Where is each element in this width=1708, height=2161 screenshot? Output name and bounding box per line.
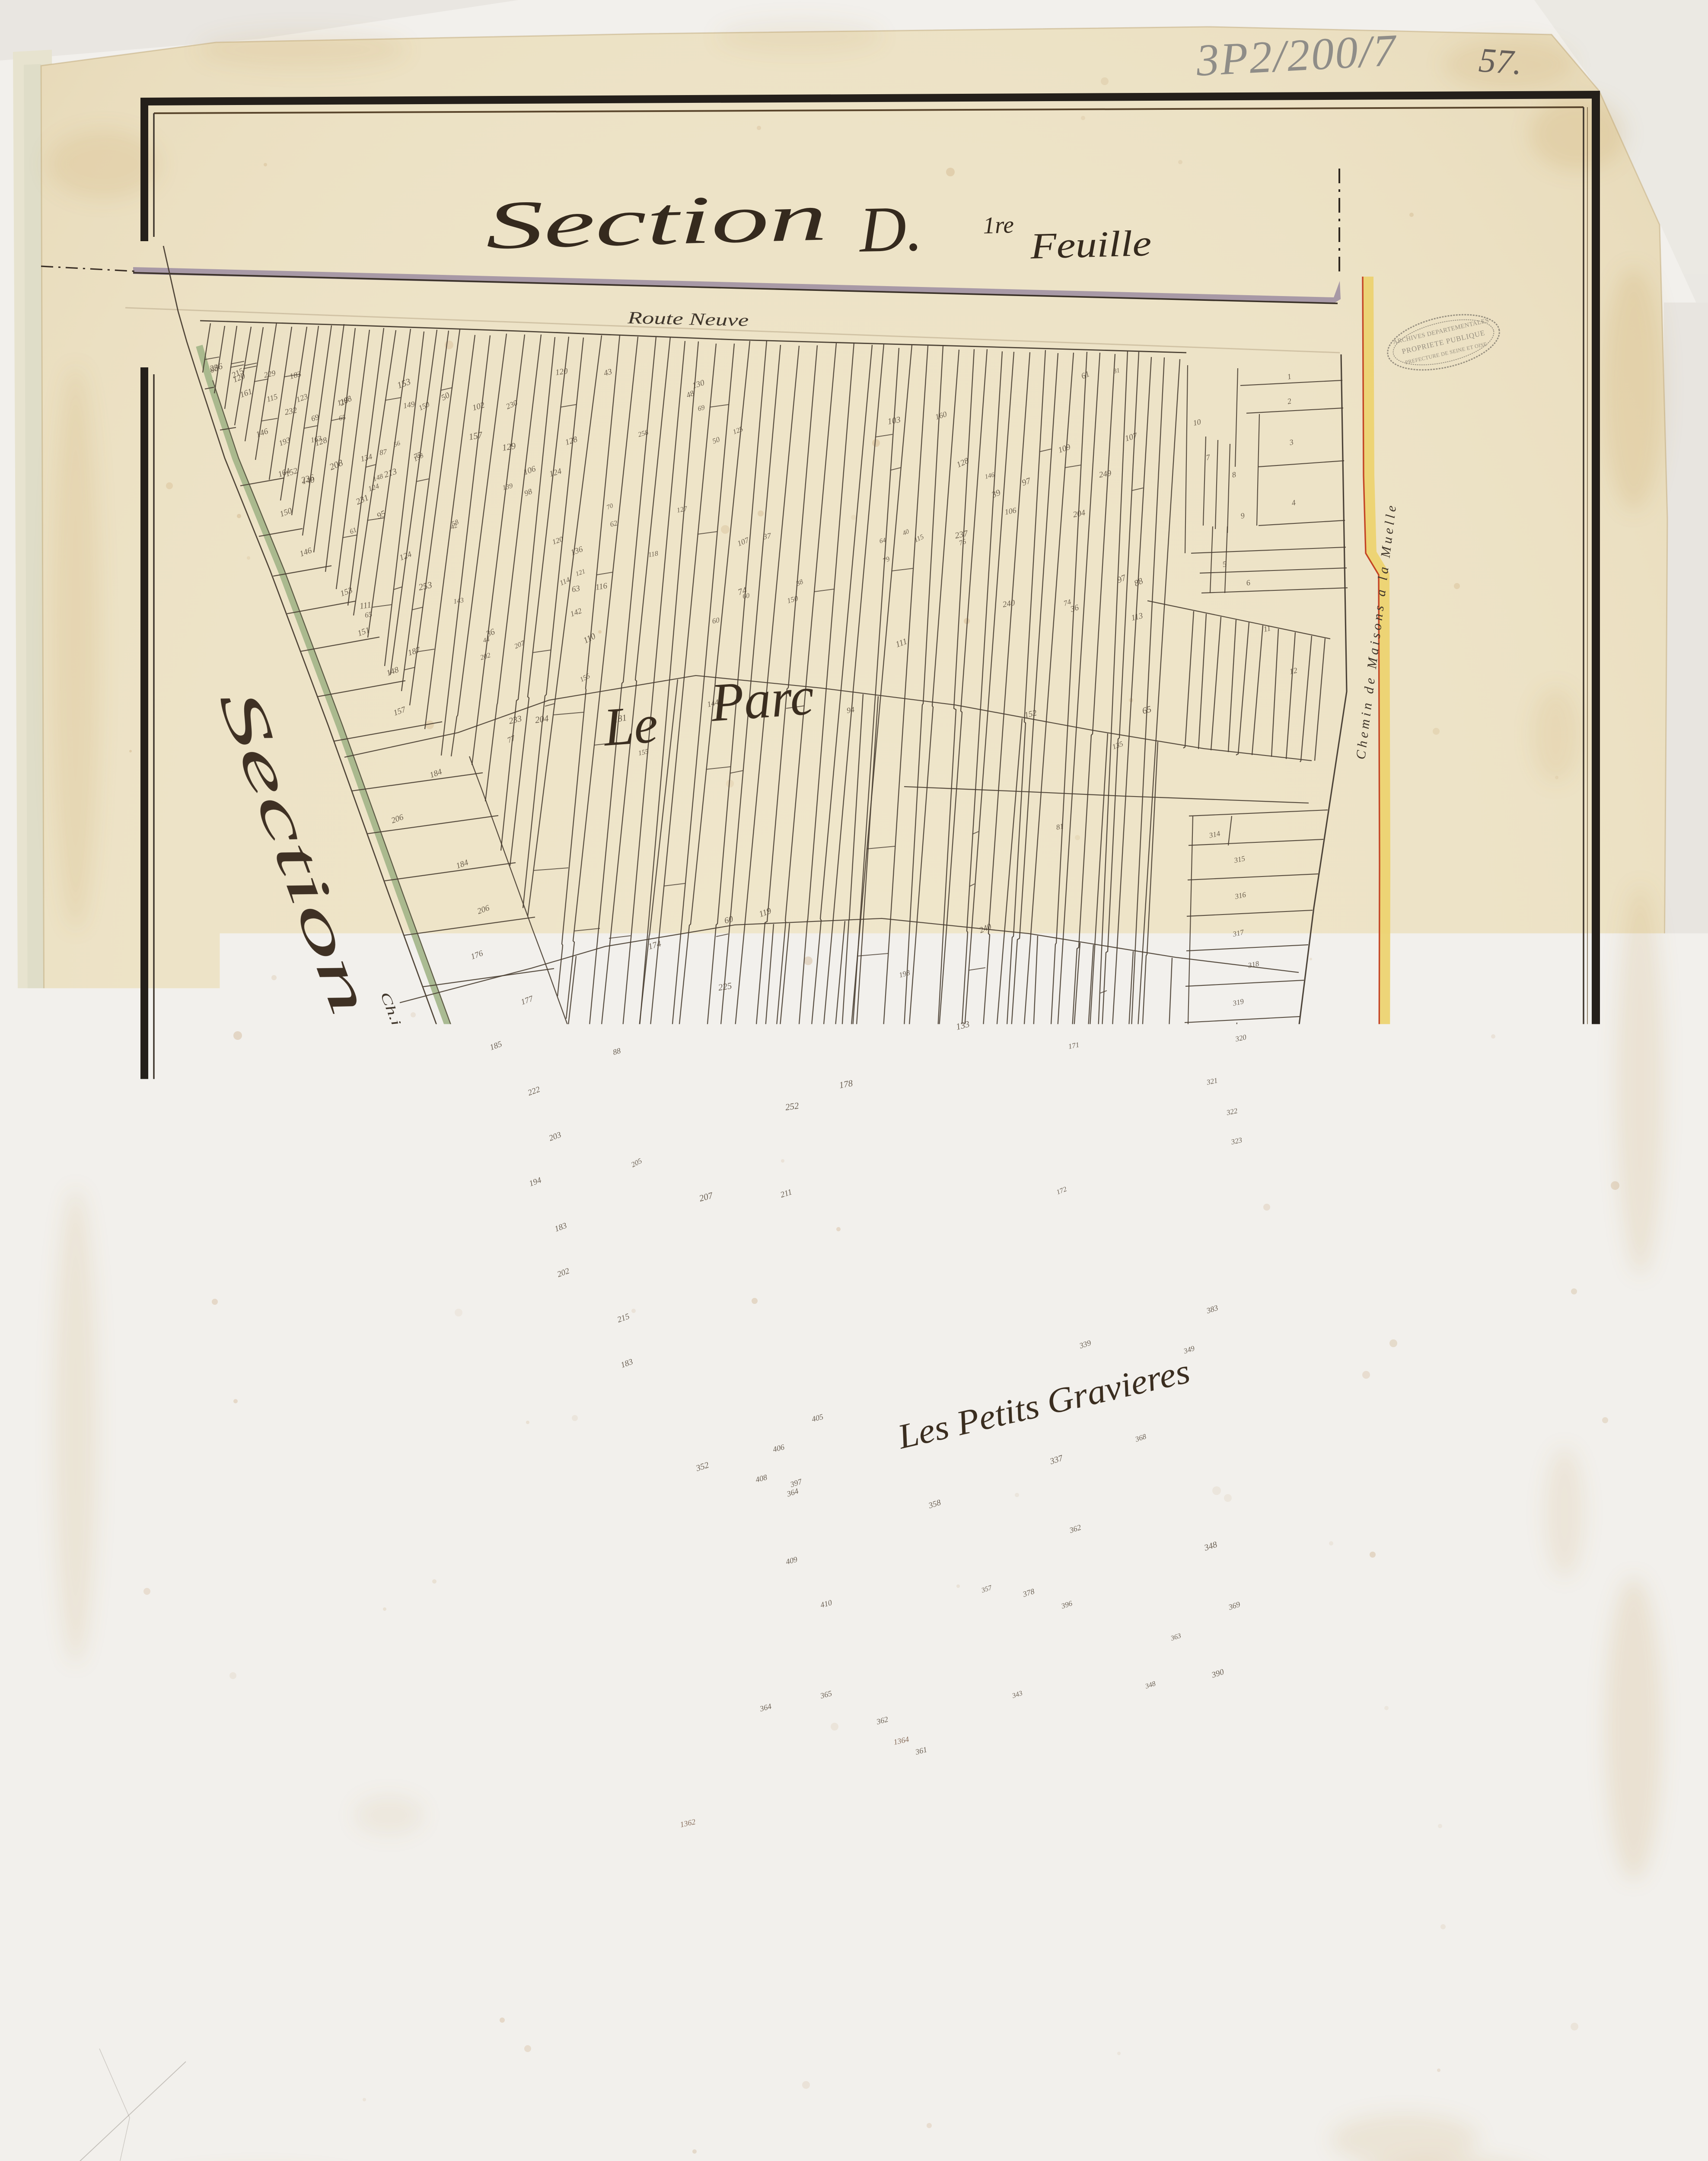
svg-text:65: 65	[364, 610, 373, 619]
svg-text:95: 95	[483, 2116, 491, 2125]
svg-text:40: 40	[336, 2116, 344, 2125]
svg-text:des: des	[326, 1635, 363, 1666]
svg-text:70: 70	[417, 2116, 425, 2125]
svg-text:63: 63	[571, 584, 580, 594]
svg-text:N.: N.	[445, 1842, 466, 1867]
svg-text:94: 94	[846, 705, 855, 715]
svg-text:80: 80	[445, 2116, 452, 2125]
svg-text:50: 50	[363, 2116, 371, 2125]
svg-text:PETITS BOIS: PETITS BOIS	[200, 1688, 459, 1732]
svg-text:Le: Le	[601, 695, 660, 758]
svg-text:Parc: Parc	[708, 666, 816, 733]
svg-text:200: 200	[761, 2116, 772, 2125]
svg-text:90: 90	[470, 2116, 478, 2125]
svg-text:225: 225	[717, 980, 733, 993]
svg-text:pour: pour	[728, 2087, 759, 2104]
svg-text:60: 60	[390, 2116, 398, 2125]
svg-text:204: 204	[534, 713, 549, 725]
svg-text:100: 100	[495, 2116, 506, 2125]
svg-text:metre: metre	[673, 2084, 708, 2101]
svg-text:10: 10	[254, 2116, 262, 2125]
svg-text:M.: M.	[1052, 2100, 1077, 2125]
svg-text:1re: 1re	[1145, 1954, 1177, 1983]
svg-text:Echelle: Echelle	[427, 2062, 566, 2119]
svg-text:1re: 1re	[983, 211, 1014, 239]
svg-text:Maisons: Maisons	[287, 1514, 390, 1546]
svg-text:Section: Section	[484, 179, 828, 264]
svg-text:111: 111	[359, 600, 372, 611]
svg-text:20: 20	[281, 2116, 289, 2125]
svg-text:1,250.: 1,250.	[790, 2075, 858, 2107]
svg-text:120: 120	[555, 367, 569, 377]
svg-text:Feuille: Feuille	[1029, 223, 1152, 267]
svg-text:60: 60	[742, 592, 750, 600]
svg-text:300: 300	[1023, 2116, 1034, 2125]
svg-text:30: 30	[308, 2116, 316, 2125]
svg-text:d’un: d’un	[600, 2085, 628, 2102]
svg-text:Route Neuve: Route Neuve	[627, 308, 749, 330]
svg-text:3P2/200/7: 3P2/200/7	[1195, 25, 1399, 86]
svg-text:116: 116	[595, 581, 608, 592]
svg-text:129: 129	[501, 440, 516, 453]
svg-text:Section C.: Section C.	[228, 1557, 437, 1614]
svg-text:252: 252	[784, 1100, 800, 1112]
svg-text:57.: 57.	[1478, 41, 1523, 82]
svg-text:D.: D.	[858, 192, 924, 266]
svg-text:140: 140	[302, 475, 315, 486]
